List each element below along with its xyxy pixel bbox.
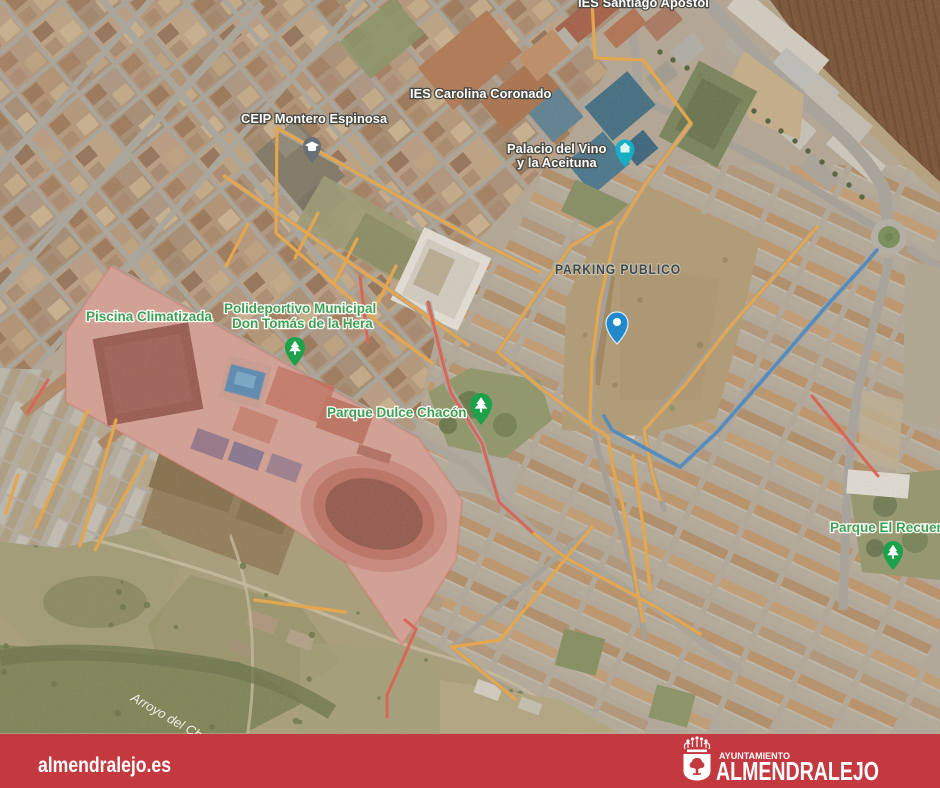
svg-text:almendralejo.es: almendralejo.es — [38, 754, 171, 777]
svg-text:y la Aceituna: y la Aceituna — [517, 155, 598, 170]
svg-text:IES Santiago Apóstol: IES Santiago Apóstol — [578, 0, 709, 10]
svg-text:PARKING PUBLICO: PARKING PUBLICO — [555, 262, 681, 277]
svg-text:CEIP Montero Espinosa: CEIP Montero Espinosa — [241, 111, 388, 126]
svg-text:Parque Dulce Chacón: Parque Dulce Chacón — [327, 405, 467, 420]
svg-text:Piscina Climatizada: Piscina Climatizada — [86, 309, 213, 324]
svg-text:Don Tomás de la Hera: Don Tomás de la Hera — [232, 316, 373, 331]
svg-text:Palacio del Vino: Palacio del Vino — [507, 141, 607, 156]
svg-text:IES Carolina Coronado: IES Carolina Coronado — [410, 86, 552, 101]
svg-text:Polideportivo Municipal: Polideportivo Municipal — [224, 301, 376, 316]
svg-text:ALMENDRALEJO: ALMENDRALEJO — [716, 756, 879, 786]
svg-text:Parque El Recuer: Parque El Recuer — [830, 520, 940, 535]
